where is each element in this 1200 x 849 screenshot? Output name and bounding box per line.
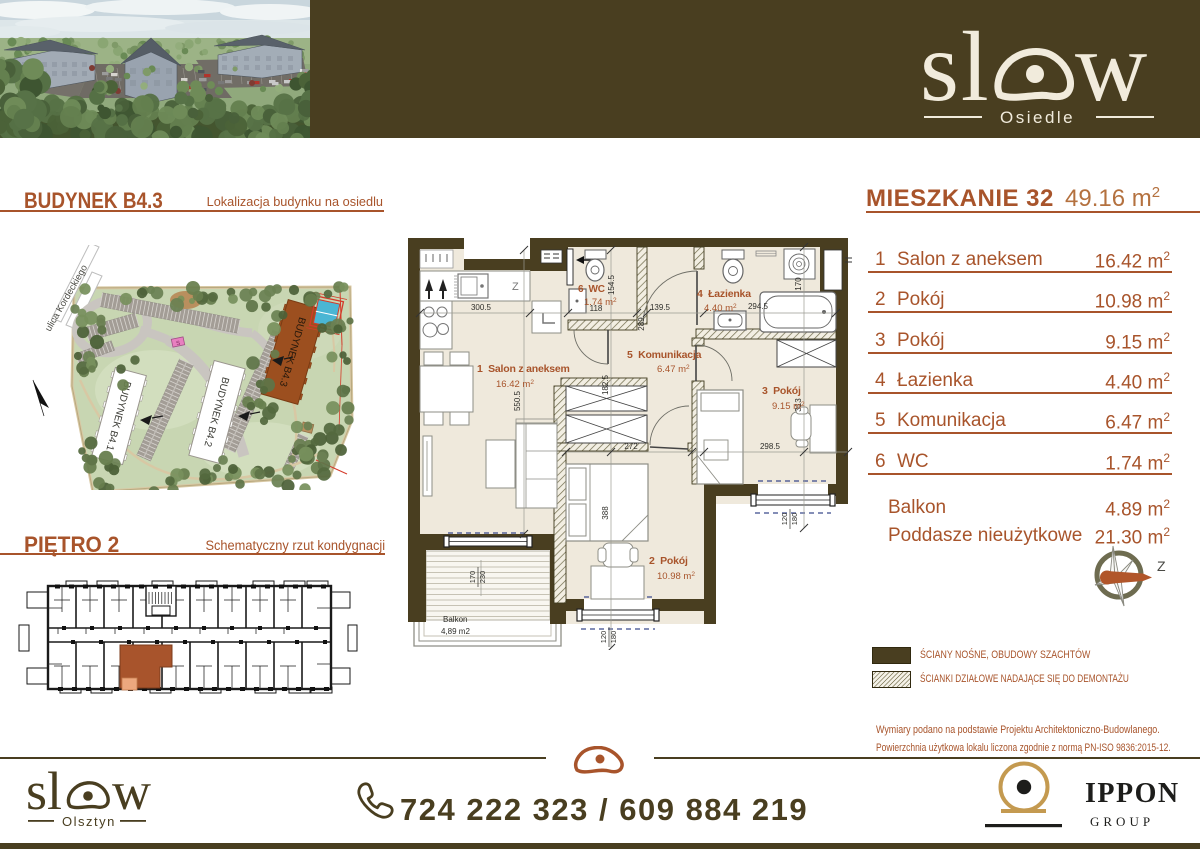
svg-text:sl: sl [920,11,991,122]
svg-text:550.5: 550.5 [513,390,522,411]
svg-text:139.5: 139.5 [650,303,671,312]
svg-text:230: 230 [478,571,487,584]
svg-text:1 Salon z aneksem: 1 Salon z aneksem [477,363,570,375]
svg-text:w: w [112,761,151,821]
svg-text:Olsztyn: Olsztyn [62,814,116,829]
svg-text:170: 170 [794,277,803,291]
svg-text:IPPON: IPPON [1085,778,1180,809]
svg-text:2 Pokój: 2 Pokój [649,555,688,567]
svg-text:5 Komunikacja: 5 Komunikacja [627,349,702,361]
svg-text:w: w [1075,11,1147,122]
svg-text:GROUP: GROUP [1090,814,1154,829]
svg-text:120: 120 [599,631,608,644]
svg-text:300.5: 300.5 [471,303,492,312]
svg-text:10.98 m2: 10.98 m2 [657,571,695,582]
svg-text:3 Pokój: 3 Pokój [762,385,801,397]
svg-text:4.40 m2: 4.40 m2 [704,303,737,314]
svg-text:16.42 m2: 16.42 m2 [496,379,534,390]
svg-text:170: 170 [468,571,477,584]
svg-text:1.74 m2: 1.74 m2 [584,297,617,308]
svg-text:180: 180 [790,513,799,526]
svg-text:4,89 m2: 4,89 m2 [441,627,470,636]
svg-text:154.5: 154.5 [607,274,616,295]
svg-text:Z: Z [512,281,519,293]
svg-text:388: 388 [601,506,610,520]
svg-text:182.5: 182.5 [601,374,610,395]
svg-text:298.5: 298.5 [760,442,781,451]
svg-text:sl: sl [26,761,62,821]
svg-text:294.5: 294.5 [748,302,769,311]
svg-text:272: 272 [624,442,638,451]
svg-text:Osiedle: Osiedle [1000,108,1075,127]
svg-text:6.47 m2: 6.47 m2 [657,364,690,375]
svg-text:9.15 m2: 9.15 m2 [772,401,805,412]
svg-text:289: 289 [637,317,646,331]
svg-text:120: 120 [780,513,789,526]
svg-text:Balkon: Balkon [443,615,467,624]
svg-text:4 Łazienka: 4 Łazienka [697,288,751,300]
svg-text:180: 180 [609,631,618,644]
svg-text:Z: Z [1157,558,1166,574]
svg-text:6 WC: 6 WC [578,284,605,295]
